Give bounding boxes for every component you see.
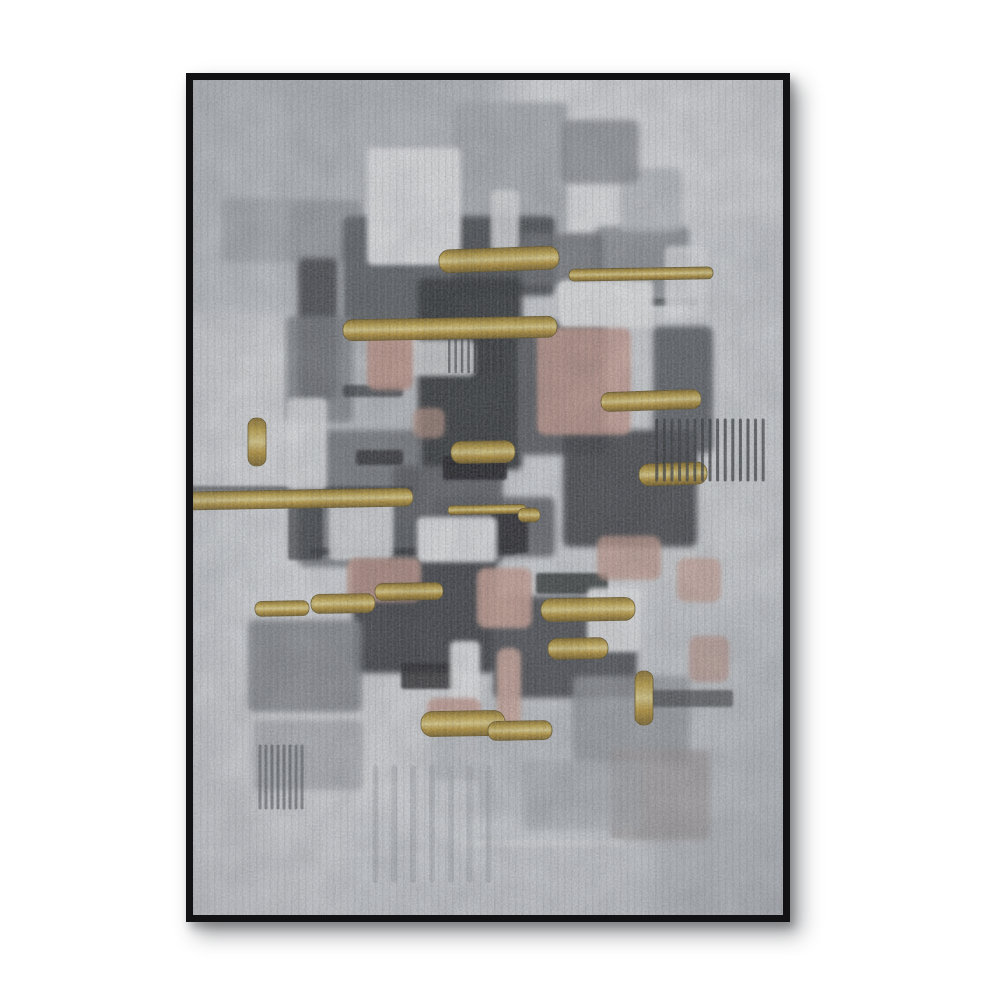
picture-frame xyxy=(186,73,790,922)
painting-canvas xyxy=(193,80,783,915)
painting-svg xyxy=(193,80,783,915)
edge-vignette xyxy=(193,80,783,915)
product-photo-background xyxy=(0,0,1000,1000)
